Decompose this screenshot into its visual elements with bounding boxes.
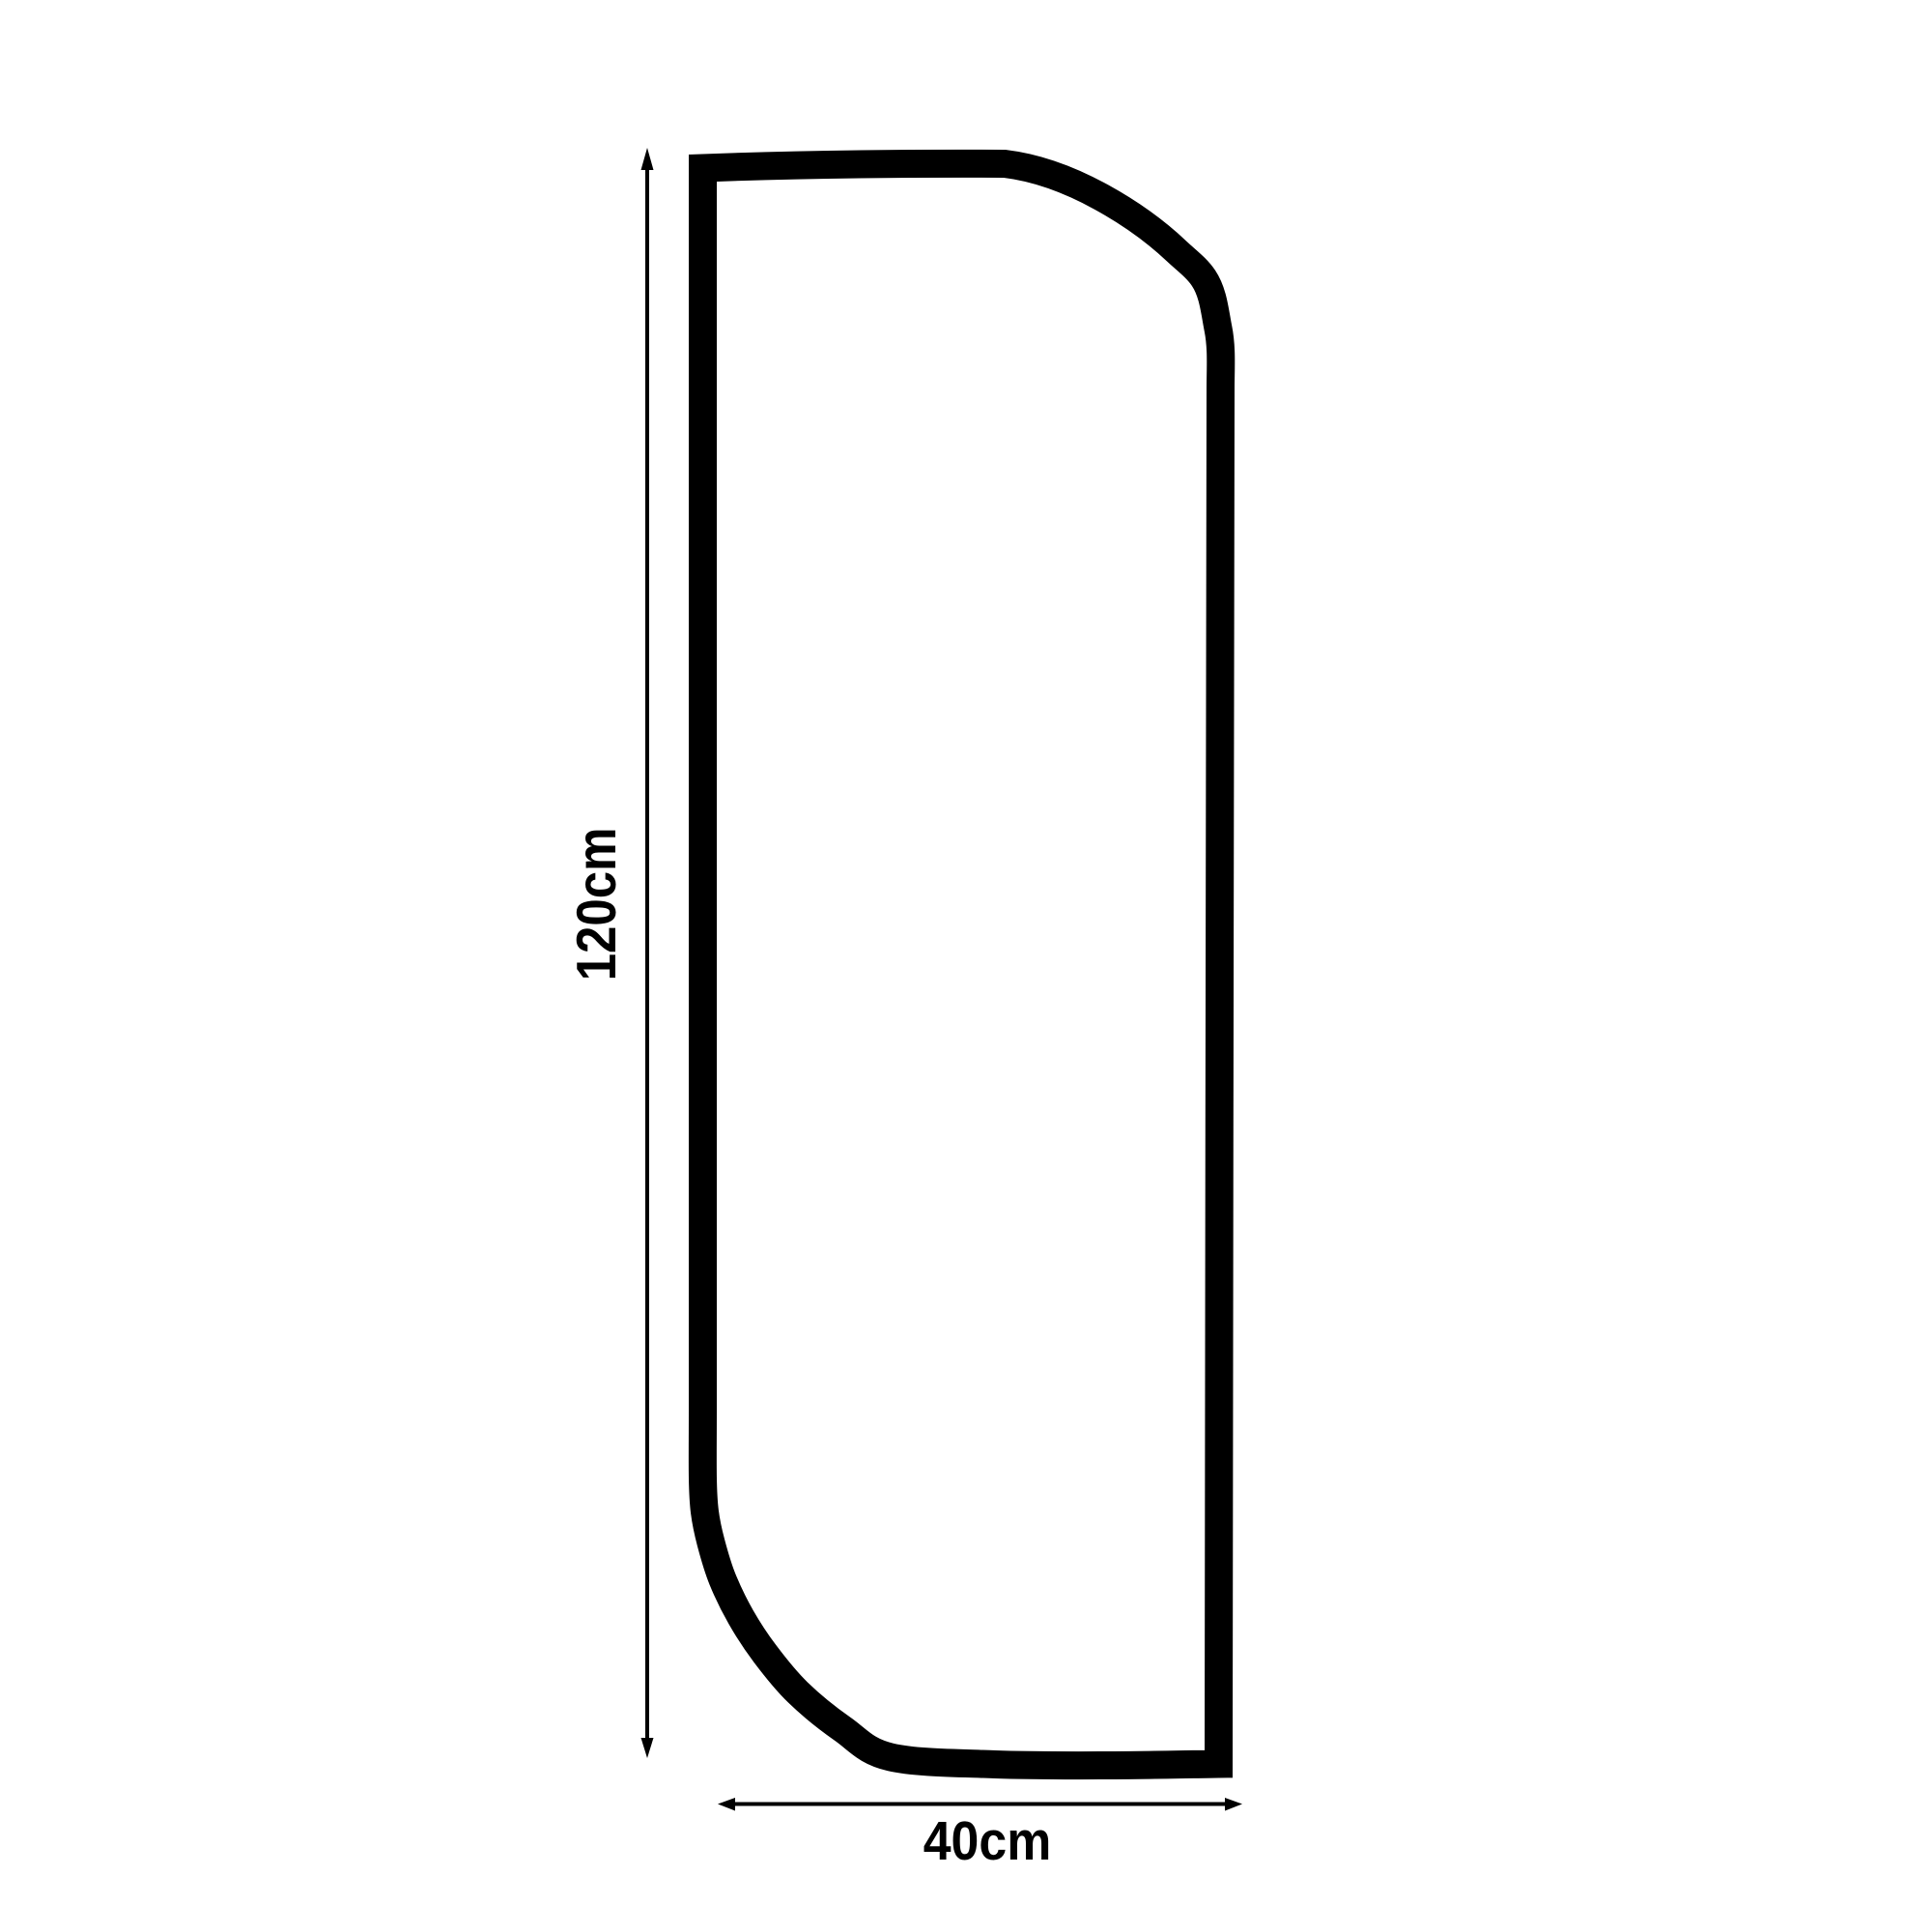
svg-text:120cm: 120cm (565, 828, 628, 981)
svg-text:40cm: 40cm (923, 1810, 1052, 1872)
